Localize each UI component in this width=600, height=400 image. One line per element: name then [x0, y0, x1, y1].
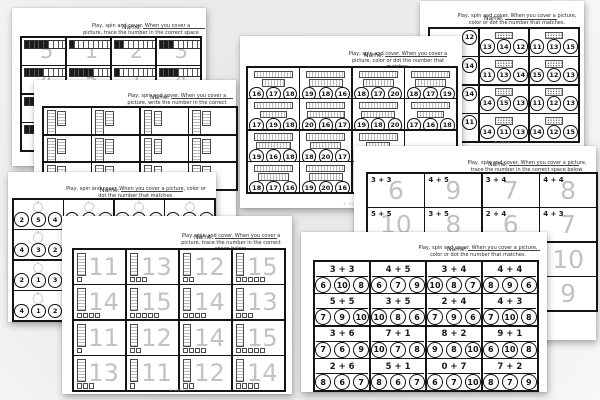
base-ten-blocks-icon: [236, 359, 259, 388]
circle-options: 7108: [483, 309, 537, 325]
circle-number: 19: [440, 87, 455, 98]
base-ten-blocks-icon: [130, 253, 147, 282]
circle-options: 201617: [302, 118, 350, 129]
grid-cell: 141113: [480, 114, 528, 141]
worksheet-trace-11-15: Name: Play, spin and cover. When you cov…: [62, 216, 292, 394]
addition-fact-label: 3 + 6: [316, 328, 368, 342]
addition-fact-label: 9 + 1: [484, 328, 536, 342]
grid-cell: 4 + 37: [540, 208, 596, 241]
circle-number: 10: [427, 277, 443, 293]
circle-options: 171918: [249, 118, 297, 129]
circle-number: 13: [513, 125, 528, 140]
grid-cell: 12: [180, 250, 231, 284]
circle-number: 11: [530, 96, 545, 111]
grid-cell: [44, 108, 91, 134]
circle-options: 111315: [530, 39, 578, 55]
grid-cell: 213: [14, 261, 63, 290]
circle-number: 8: [521, 342, 537, 358]
circle-options: 191816: [302, 87, 350, 98]
addition-fact-label: 3 + 3: [316, 263, 368, 277]
circle-number: 19: [302, 181, 317, 192]
circle-options: 141215: [530, 125, 578, 141]
circle-number: 20: [319, 181, 334, 192]
grid-cell: 11: [74, 321, 125, 355]
circle-number: 18: [354, 87, 369, 98]
circle-number: 15: [497, 96, 512, 111]
circle-number: 14: [513, 68, 528, 83]
grid-cell: 14: [233, 356, 284, 390]
grid-cell: 5: [22, 38, 65, 65]
circle-options: 769: [315, 342, 369, 358]
grid-cell: 4 + 5679: [371, 262, 425, 293]
grid-cell: 111314: [480, 57, 528, 84]
ten-frame-icon: [545, 117, 563, 125]
counting-frame-icon: [114, 40, 155, 49]
base-ten-blocks-icon: [77, 288, 100, 317]
circle-options: 182017: [302, 149, 350, 160]
circle-number: 17: [371, 87, 386, 98]
worksheet-instructions: Play, spin and cover. When you cover a p…: [415, 245, 541, 258]
grid-cell: 254: [14, 200, 63, 229]
circle-number: 17: [335, 149, 350, 160]
grid-cell: 15: [127, 285, 178, 319]
base-ten-blocks-icon: [236, 324, 265, 353]
base-ten-rods-icon: [144, 138, 163, 162]
ten-frame-icon: [495, 117, 513, 125]
circle-options: 796: [427, 309, 481, 325]
circle-number: 18: [249, 181, 264, 192]
circle-number: 8: [353, 277, 369, 293]
addition-fact-label: 0 + 7: [428, 360, 480, 374]
circle-number: 13: [547, 39, 562, 54]
circle-number: 9: [409, 277, 425, 293]
grid-cell: 4 + 48: [540, 174, 596, 207]
addition-fact-label: 3 + 4: [428, 263, 480, 277]
base-ten-rods-icon: [411, 69, 450, 87]
base-ten-blocks-icon: [77, 359, 94, 388]
circle-number: 16: [249, 87, 264, 98]
base-ten-rods-icon: [359, 69, 398, 87]
base-ten-blocks-icon: [236, 253, 265, 282]
circle-options: 412: [14, 304, 62, 320]
grid-cell: 3 + 6769: [315, 327, 369, 358]
circle-number: 15: [563, 125, 578, 140]
circle-number: 14: [480, 125, 495, 140]
circle-number: 17: [249, 118, 264, 129]
circle-options: 1086: [371, 309, 425, 325]
grid-cell: 7 + 11078: [371, 327, 425, 358]
grid-cell: 181719: [405, 68, 456, 98]
circle-options: 1087: [427, 277, 481, 293]
grid-cell: 181716: [248, 162, 299, 192]
grid-cell: 181720: [353, 68, 404, 98]
circle-number: 9: [446, 309, 462, 325]
circle-number: 7: [390, 277, 406, 293]
grid-cell: 171618: [405, 99, 456, 129]
trace-number: 10: [541, 244, 595, 275]
circle-number: 18: [302, 149, 317, 160]
base-ten-rods-icon: [192, 138, 211, 162]
circle-number: 10: [334, 277, 350, 293]
circle-number: 16: [335, 87, 350, 98]
circle-number: 6: [334, 342, 350, 358]
picture-icon: [33, 293, 43, 303]
addition-fact-label: 2 + 6: [316, 360, 368, 374]
base-ten-blocks-icon: [183, 253, 194, 282]
circle-number: 14: [497, 39, 512, 54]
grid-cell: 2 + 4796: [427, 294, 481, 325]
circle-options: 151213: [530, 68, 578, 84]
grid-cell: 10: [540, 243, 596, 276]
circle-number: 8: [483, 277, 499, 293]
grid-cell: 15: [233, 321, 284, 355]
circle-number: 12: [513, 39, 528, 54]
worksheet-grid: 3 + 361084 + 56793 + 410874 + 48965 + 57…: [313, 260, 539, 392]
circle-number: 20: [388, 118, 403, 129]
circle-number: 16: [319, 118, 334, 129]
circle-number: 18: [283, 149, 298, 160]
grid-cell: 432: [14, 230, 63, 259]
grid-cell: 4 + 37108: [483, 294, 537, 325]
grid-cell: 13: [233, 285, 284, 319]
circle-options: 111213: [530, 96, 578, 112]
circle-number: 13: [497, 68, 512, 83]
circle-number: 6: [465, 309, 481, 325]
circle-number: 10: [371, 342, 387, 358]
circle-options: 7910: [315, 309, 369, 325]
circle-options: 896: [483, 277, 537, 293]
footer-credit: © 2018: [301, 386, 547, 390]
circle-number: 7: [465, 277, 481, 293]
circle-number: 3: [48, 273, 63, 288]
base-ten-blocks-icon: [183, 359, 194, 388]
grid-cell: 191816: [300, 68, 351, 98]
circle-number: 12: [547, 125, 562, 140]
grid-cell: 3 + 36108: [315, 262, 369, 293]
base-ten-blocks-icon: [236, 288, 253, 317]
circle-options: 191618: [249, 149, 297, 160]
picture-icon: [33, 202, 43, 212]
circle-options: 679: [371, 277, 425, 293]
circle-options: 141513: [480, 96, 528, 112]
base-ten-rods-icon: [359, 100, 398, 118]
circle-options: 432: [14, 243, 62, 259]
circle-number: 2: [14, 212, 29, 227]
circle-number: 14: [530, 125, 545, 140]
circle-number: 7: [390, 342, 406, 358]
circle-number: 6: [371, 277, 387, 293]
counting-frame-icon: [24, 68, 65, 77]
base-ten-rods-icon: [306, 69, 345, 87]
circle-number: 17: [423, 87, 438, 98]
grid-cell: 1: [67, 38, 110, 65]
addition-fact-label: 8 + 2: [428, 328, 480, 342]
circle-options: 111314: [480, 68, 528, 84]
circle-number: 2: [48, 304, 63, 319]
circle-number: 4: [14, 243, 29, 258]
circle-number: 16: [266, 149, 281, 160]
circle-number: 8: [521, 309, 537, 325]
counting-frame-icon: [159, 40, 200, 49]
circle-number: 14: [462, 58, 477, 73]
circle-number: 11: [497, 125, 512, 140]
circle-options: 181719: [407, 87, 455, 98]
circle-number: 17: [266, 181, 281, 192]
circle-number: 10: [502, 309, 518, 325]
grid-cell: 191820: [353, 99, 404, 129]
base-ten-rods-icon: [95, 138, 114, 162]
grid-cell: [92, 108, 139, 134]
addition-fact-label: 3 + 3: [371, 176, 391, 184]
ten-frame-icon: [545, 88, 563, 96]
addition-fact-label: 4 + 3: [543, 210, 563, 218]
grid-cell: [189, 136, 236, 162]
circle-options: 161718: [249, 87, 297, 98]
circle-options: 1078: [371, 342, 425, 358]
grid-cell: 192016: [300, 162, 351, 192]
circle-number: 1: [31, 273, 46, 288]
grid-cell: 3 + 41087: [427, 262, 481, 293]
circle-number: 8: [409, 342, 425, 358]
grid-cell: 3: [157, 38, 200, 65]
circle-number: 19: [249, 149, 264, 160]
circle-number: 12: [547, 96, 562, 111]
circle-options: 6108: [315, 277, 369, 293]
base-ten-blocks-icon: [77, 253, 86, 282]
ten-frame-icon: [545, 60, 563, 68]
grid-cell: 13: [74, 356, 125, 390]
picture-icon: [185, 202, 195, 212]
base-ten-rods-icon: [144, 110, 163, 134]
circle-number: 7: [483, 309, 499, 325]
counting-frame-icon: [24, 40, 65, 49]
grid-cell: 3 + 51086: [371, 294, 425, 325]
circle-number: 7: [315, 309, 331, 325]
circle-number: 16: [283, 181, 298, 192]
base-ten-rods-icon: [47, 110, 66, 134]
ten-frame-icon: [495, 32, 513, 40]
addition-fact-label: 7 + 1: [372, 328, 424, 342]
grid-cell: 3 + 47: [483, 174, 539, 207]
grid-cell: 14: [74, 285, 125, 319]
counting-frame-icon: [159, 68, 200, 77]
grid-cell: [92, 136, 139, 162]
circle-options: 191820: [354, 118, 402, 129]
circle-number: 18: [440, 118, 455, 129]
circle-number: 8: [446, 342, 462, 358]
circle-number: 15: [563, 39, 578, 54]
grid-cell: 13: [127, 250, 178, 284]
circle-number: 14: [480, 96, 495, 111]
base-ten-rods-icon: [306, 163, 345, 181]
base-ten-rods-icon: [95, 110, 114, 134]
circle-number: 17: [335, 118, 350, 129]
grid-cell: 161718: [248, 68, 299, 98]
picture-icon: [33, 263, 43, 273]
worksheet-color-sums: Name: Play, spin and cover. When you cov…: [301, 232, 547, 392]
worksheet-grid: 11131215141514131112141513111214: [72, 248, 286, 392]
addition-fact-label: 7 + 2: [484, 360, 536, 374]
circle-number: 18: [319, 87, 334, 98]
base-ten-rods-icon: [306, 100, 345, 118]
base-ten-rods-icon: [254, 132, 293, 150]
base-ten-rods-icon: [254, 163, 293, 181]
circle-number: 16: [423, 118, 438, 129]
base-ten-blocks-icon: [183, 288, 206, 317]
base-ten-rods-icon: [254, 100, 293, 118]
circle-number: 2: [14, 273, 29, 288]
circle-number: 8: [446, 277, 462, 293]
grid-cell: 171918: [248, 99, 299, 129]
circle-number: 3: [31, 243, 46, 258]
circle-number: 9: [502, 277, 518, 293]
addition-fact-label: 5 + 5: [316, 295, 368, 309]
grid-cell: 15: [233, 250, 284, 284]
base-ten-rods-icon: [192, 110, 211, 134]
circle-number: 18: [283, 118, 298, 129]
ten-frame-icon: [495, 88, 513, 96]
addition-fact-label: 2 + 4: [486, 210, 506, 218]
grid-cell: 151213: [530, 57, 578, 84]
worksheet-mockup-canvas: Name: Play, spin and cover. When you cov…: [0, 0, 600, 400]
circle-number: 12: [462, 30, 477, 45]
circle-number: 16: [335, 181, 350, 192]
grid-cell: 9 + 16108: [483, 327, 537, 358]
circle-number: 12: [547, 68, 562, 83]
circle-number: 20: [302, 118, 317, 129]
circle-number: 19: [302, 87, 317, 98]
grid-cell: 201617: [300, 99, 351, 129]
circle-number: 14: [462, 87, 477, 102]
circle-number: 17: [407, 118, 422, 129]
circle-number: 18: [407, 87, 422, 98]
circle-number: 4: [14, 304, 29, 319]
ten-frame-icon: [545, 32, 563, 40]
circle-number: 4: [48, 212, 63, 227]
circle-number: 9: [427, 342, 443, 358]
circle-number: 10: [353, 309, 369, 325]
circle-options: 213: [14, 273, 62, 289]
trace-number: 9: [541, 278, 595, 309]
circle-number: 10: [465, 342, 481, 358]
grid-cell: 9: [540, 277, 596, 310]
circle-options: 9810: [427, 342, 481, 358]
addition-fact-label: 4 + 3: [484, 295, 536, 309]
addition-fact-label: 4 + 5: [372, 263, 424, 277]
circle-number: 19: [266, 118, 281, 129]
circle-number: 19: [354, 118, 369, 129]
circle-number: 6: [409, 309, 425, 325]
grid-cell: 4 + 59: [425, 174, 481, 207]
base-ten-blocks-icon: [130, 324, 141, 353]
base-ten-rods-icon: [254, 69, 293, 87]
circle-number: 9: [353, 342, 369, 358]
circle-number: 7: [315, 342, 331, 358]
grid-cell: 8 + 29810: [427, 327, 481, 358]
base-ten-blocks-icon: [130, 288, 159, 317]
grid-cell: 2: [112, 38, 155, 65]
worksheet-instructions: Play, spin and cover. When you cover a p…: [456, 13, 578, 26]
addition-fact-label: 4 + 4: [484, 263, 536, 277]
grid-cell: 3 + 36: [368, 174, 424, 207]
circle-number: 11: [530, 39, 545, 54]
addition-fact-label: 3 + 5: [372, 295, 424, 309]
circle-number: 1: [31, 304, 46, 319]
circle-number: 10: [371, 309, 387, 325]
base-ten-rods-icon: [306, 132, 345, 150]
addition-fact-label: 4 + 5: [428, 176, 448, 184]
circle-number: 20: [388, 87, 403, 98]
circle-number: 6: [315, 277, 331, 293]
ten-frame-icon: [495, 60, 513, 68]
circle-options: 131412: [480, 39, 528, 55]
circle-number: 9: [334, 309, 350, 325]
grid-cell: 111315: [530, 29, 578, 56]
circle-options: 181716: [249, 181, 297, 192]
grid-cell: 12: [127, 321, 178, 355]
circle-number: 13: [563, 96, 578, 111]
addition-fact-label: 5 + 5: [371, 210, 391, 218]
addition-fact-label: 3 + 4: [486, 176, 506, 184]
grid-cell: 5 + 57910: [315, 294, 369, 325]
circle-number: 15: [530, 68, 545, 83]
addition-fact-label: 5 + 1: [372, 360, 424, 374]
counting-frame-icon: [69, 68, 110, 77]
circle-options: 254: [14, 212, 62, 228]
grid-cell: 11: [74, 250, 125, 284]
grid-cell: 131412: [480, 29, 528, 56]
circle-number: 11: [462, 115, 477, 130]
circle-number: 5: [31, 212, 46, 227]
base-ten-rods-icon: [411, 100, 450, 118]
grid-cell: 182017: [300, 131, 351, 161]
grid-cell: 12: [180, 356, 231, 390]
circle-number: 11: [480, 68, 495, 83]
base-ten-blocks-icon: [183, 324, 206, 353]
grid-cell: 412: [14, 291, 63, 320]
grid-cell: [44, 136, 91, 162]
grid-cell: 14: [180, 321, 231, 355]
circle-number: 13: [513, 96, 528, 111]
circle-number: 8: [390, 309, 406, 325]
circle-number: 6: [521, 277, 537, 293]
base-ten-blocks-icon: [77, 324, 86, 353]
counting-frame-icon: [69, 40, 110, 49]
counting-frame-icon: [114, 68, 155, 77]
circle-number: 6: [483, 342, 499, 358]
circle-number: 13: [563, 68, 578, 83]
base-ten-rods-icon: [47, 138, 66, 162]
picture-icon: [33, 232, 43, 242]
footer-credit: © 2018: [62, 388, 292, 392]
circle-options: 192016: [302, 181, 350, 192]
picture-icon: [84, 202, 94, 212]
grid-cell: [141, 136, 188, 162]
circle-number: 13: [480, 39, 495, 54]
circle-number: 18: [283, 87, 298, 98]
circle-number: 7: [427, 309, 443, 325]
circle-number: 2: [48, 243, 63, 258]
circle-number: 20: [319, 149, 334, 160]
addition-fact-label: 3 + 5: [428, 210, 448, 218]
circle-options: 6108: [483, 342, 537, 358]
circle-options: 171618: [407, 118, 455, 129]
addition-fact-label: 2 + 4: [428, 295, 480, 309]
grid-cell: 4 + 4896: [483, 262, 537, 293]
addition-fact-label: 4 + 4: [543, 176, 563, 184]
circle-number: 17: [266, 87, 281, 98]
grid-cell: 141215: [530, 114, 578, 141]
